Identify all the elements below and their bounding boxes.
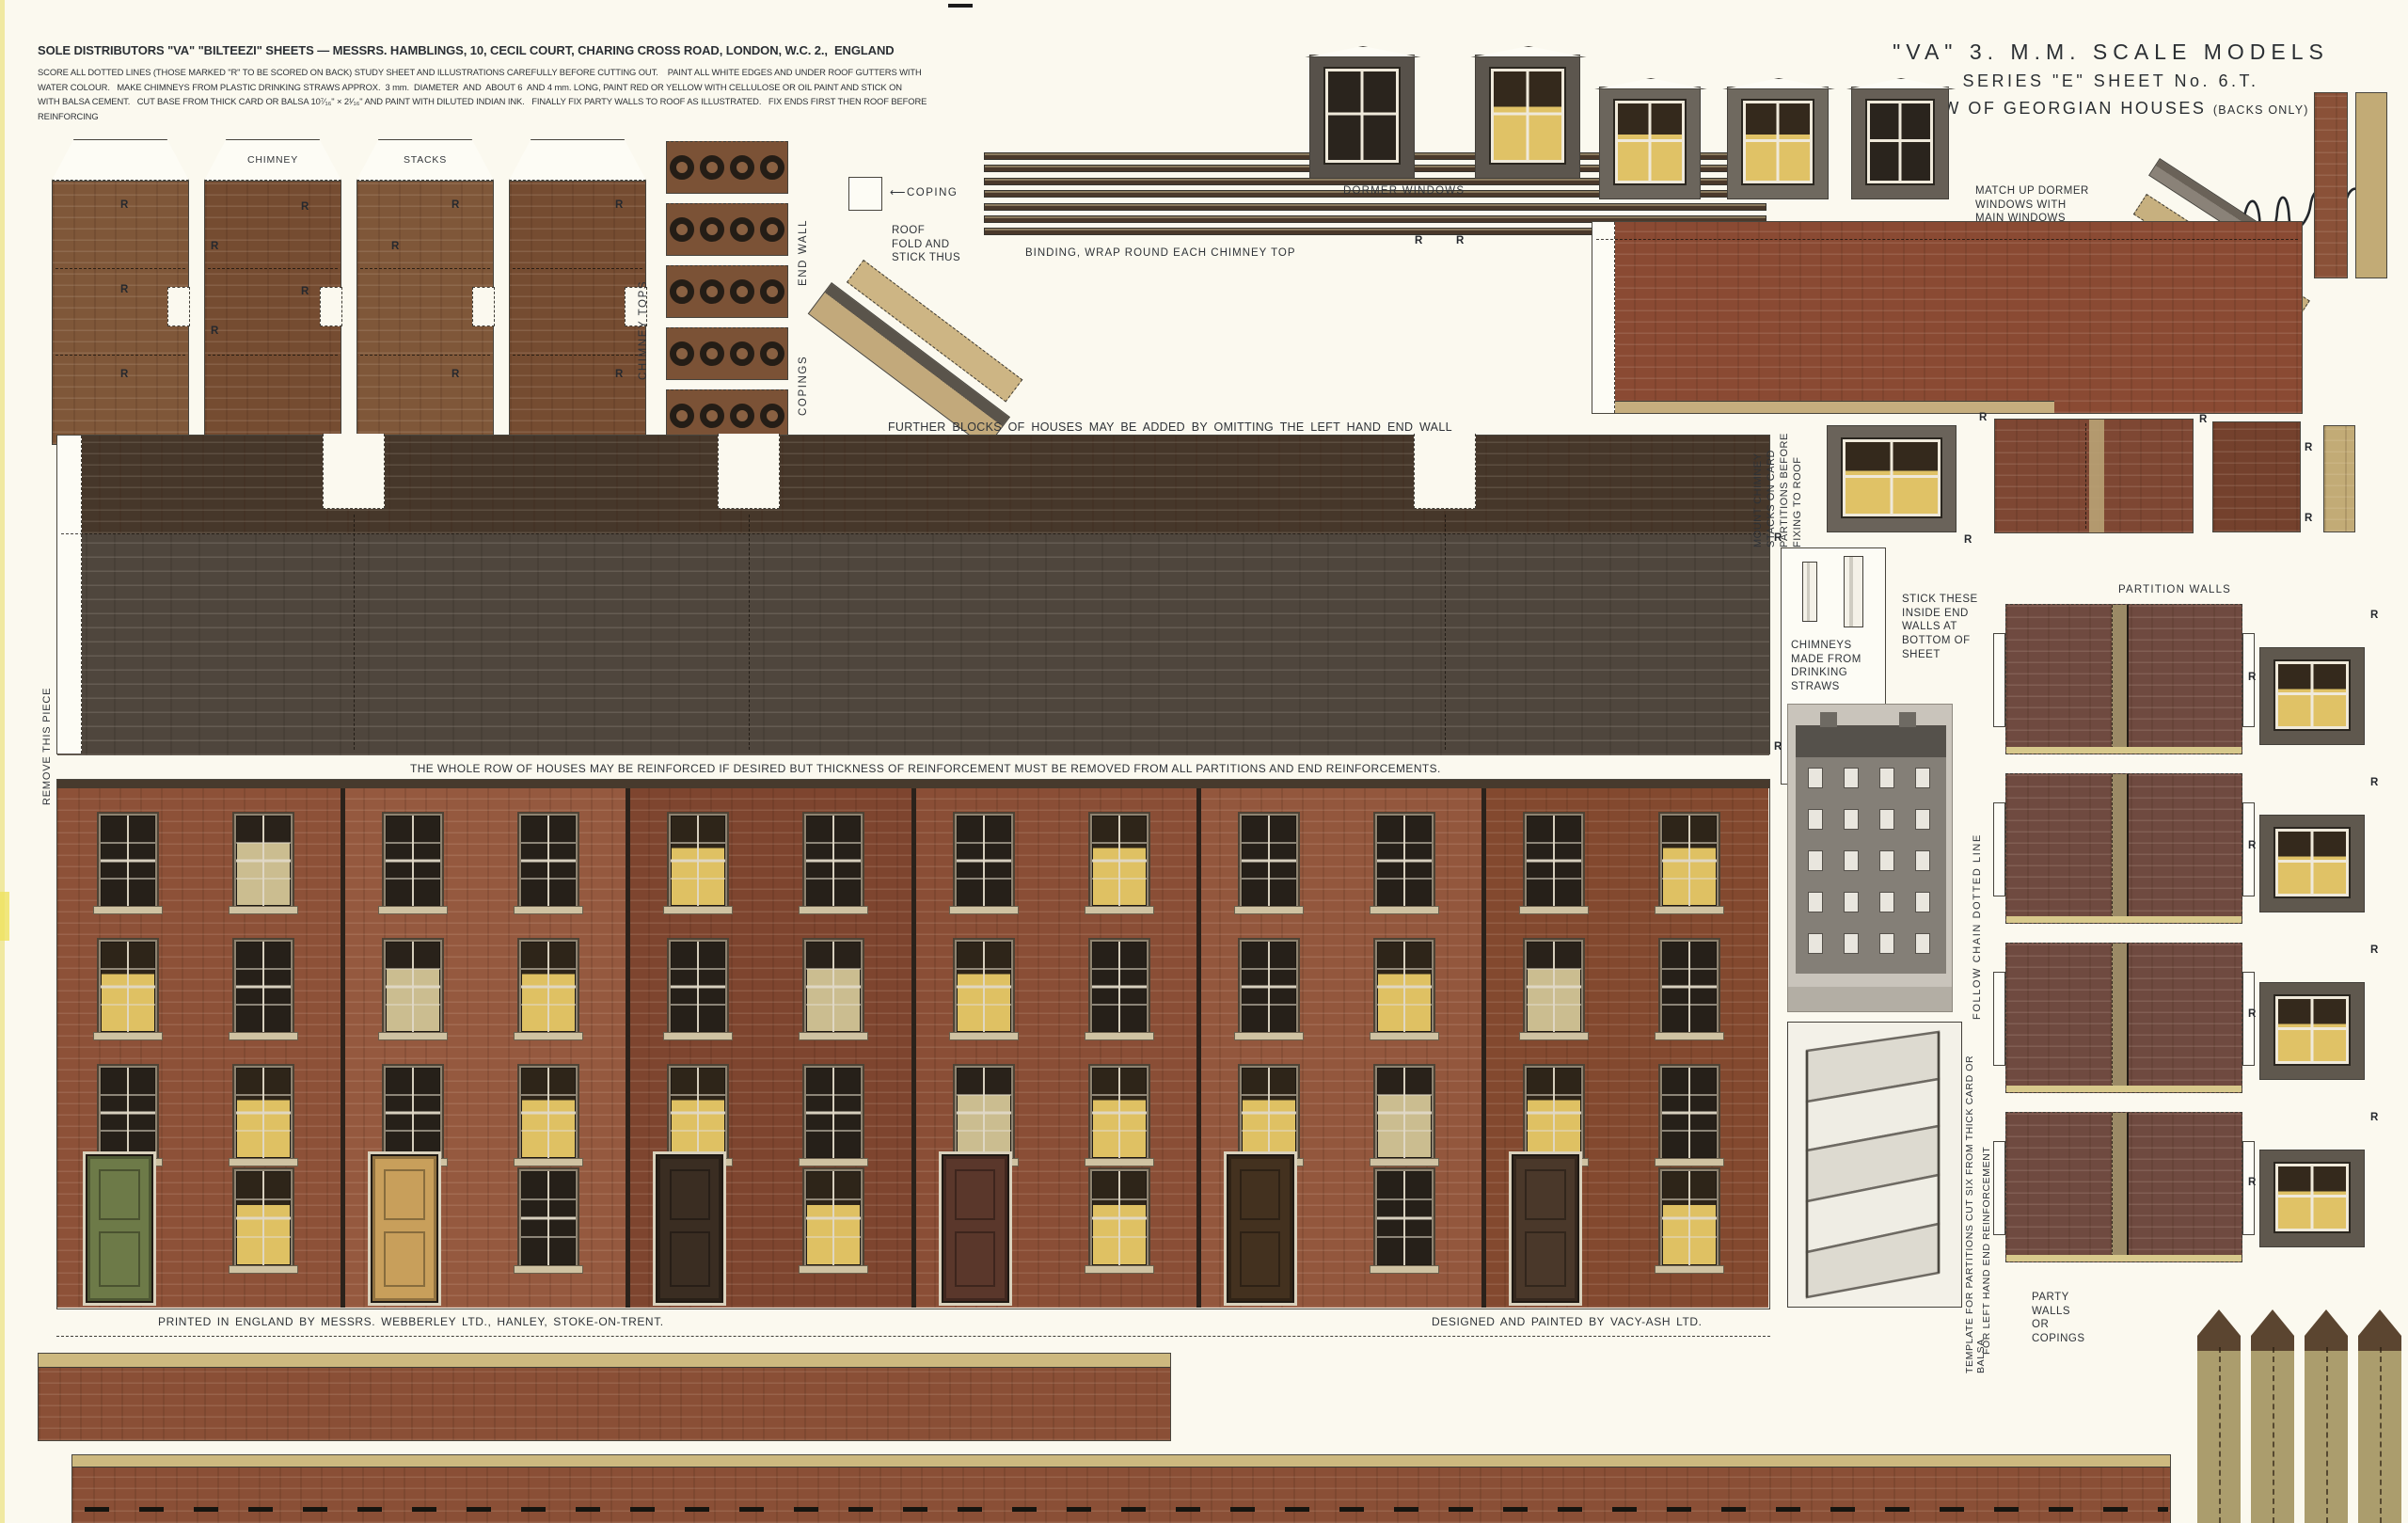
house-door	[942, 1154, 1009, 1303]
house-unit	[1483, 780, 1768, 1308]
dormer-glass	[1743, 101, 1813, 183]
dormer-glass	[2275, 1164, 2349, 1231]
roof-piece	[56, 435, 1770, 754]
partition-center-band	[2112, 774, 2129, 923]
party-walls-label: PARTY WALLS OR COPINGS	[2032, 1291, 2085, 1346]
score-on-back-mark: R	[1964, 534, 1972, 546]
mount-chimney-note: MOUNT CHIMNEY STACKS ON CARD PARTITIONS …	[1751, 414, 1804, 547]
illus-window	[1916, 769, 1929, 787]
sash-window	[1525, 1066, 1583, 1160]
illus-window	[1880, 851, 1893, 870]
dormer-roof-flap	[1715, 78, 1843, 89]
follow-chain-note: FOLLOW CHAIN DOTTED LINE	[1972, 783, 1983, 1020]
illus-window	[1916, 893, 1929, 912]
sash-window	[99, 940, 157, 1034]
partition-wall-block	[2005, 604, 2242, 754]
roof-slates	[57, 533, 1769, 755]
partition-wall-block	[2005, 1112, 2242, 1262]
ground-floor-window	[804, 1169, 863, 1267]
binding-label: BINDING, WRAP ROUND EACH CHIMNEY TOP	[1025, 246, 1296, 261]
house-unit	[57, 780, 342, 1308]
house-door	[86, 1154, 153, 1303]
sash-window	[1525, 940, 1583, 1034]
illus-window	[1845, 934, 1858, 953]
dormer-window-piece	[1475, 55, 1580, 179]
partition-base-sliver	[2006, 1086, 2242, 1092]
house-door	[1512, 1154, 1579, 1303]
yard-wall-2-coping	[72, 1455, 2170, 1467]
illus-chimney-1	[1820, 712, 1837, 727]
margin-strip-2	[2355, 92, 2387, 278]
party-wall-strip	[2305, 1309, 2348, 1523]
margin-strip-3	[2323, 425, 2355, 532]
yard-wall-1-coping	[39, 1354, 1170, 1368]
sash-window	[1240, 940, 1298, 1034]
partition-base-sliver	[2006, 916, 2242, 923]
illus-roof	[1796, 725, 1946, 757]
side-dormer-pieces	[2259, 647, 2368, 1268]
reinforcement-band	[2089, 420, 2104, 532]
sash-window	[519, 940, 578, 1034]
dormer-window-piece	[1309, 55, 1415, 179]
bottom-cut-dashes	[85, 1507, 2168, 1512]
sash-window	[1660, 814, 1719, 908]
sash-window	[1090, 1066, 1149, 1160]
partition-side-tab	[1993, 802, 2005, 896]
dormer-sample-glass	[1843, 439, 1941, 516]
chimney-pot-ring	[760, 279, 784, 304]
sash-window	[669, 814, 727, 908]
stack-fold-line	[360, 355, 490, 356]
illus-window	[1809, 934, 1822, 953]
illus-chimney-2	[1899, 712, 1916, 727]
illus-window	[1809, 893, 1822, 912]
stack-fold-line	[360, 268, 490, 269]
partition-wall-pieces	[2005, 604, 2244, 1281]
sash-window	[1660, 1066, 1719, 1160]
chimney-gap-2	[718, 434, 780, 509]
roof-upper-band	[57, 436, 1769, 533]
illus-window	[1880, 810, 1893, 829]
partition-center-band	[2112, 605, 2129, 754]
downpipe	[341, 780, 345, 1308]
dormer-roof-flap	[1587, 78, 1715, 89]
illus-window	[1916, 810, 1929, 829]
downpipe	[1196, 780, 1201, 1308]
illus-window	[1916, 934, 1929, 953]
sash-window	[384, 940, 442, 1034]
house-door	[656, 1154, 723, 1303]
stack-cut-notch	[320, 287, 342, 326]
house-unit	[627, 780, 912, 1308]
sash-window	[804, 1066, 863, 1160]
illus-window	[1809, 851, 1822, 870]
sash-window	[1525, 814, 1583, 908]
dormer-window-sample	[1827, 425, 1956, 532]
ground-floor-window	[234, 1169, 293, 1267]
stack-cut-notch	[167, 287, 190, 326]
house-wall-piece	[56, 779, 1770, 1309]
dormer-roof-flap	[1297, 46, 1429, 57]
house-unit	[913, 780, 1198, 1308]
partition-side-tab	[2242, 802, 2255, 896]
straw-2	[1844, 556, 1863, 627]
sash-window	[1090, 814, 1149, 908]
score-on-back-mark: R	[2199, 414, 2207, 425]
dormer-glass	[2275, 829, 2349, 896]
printer-caption: PRINTED IN ENGLAND BY MESSRS. WEBBERLEY …	[158, 1315, 664, 1328]
margin-strip-1	[2314, 92, 2348, 278]
dormer-glass	[1325, 69, 1399, 163]
chimney-pot-ring	[730, 341, 754, 366]
sash-window	[1375, 940, 1434, 1034]
designer-caption: DESIGNED AND PAINTED BY VACY-ASH LTD.	[1432, 1315, 1703, 1328]
sash-window	[99, 1066, 157, 1160]
house-unit	[342, 780, 627, 1308]
downpipe	[1481, 780, 1486, 1308]
sash-window	[804, 940, 863, 1034]
house-door	[371, 1154, 438, 1303]
partition-side-tab	[2242, 633, 2255, 727]
partition-base-sliver	[2006, 747, 2242, 754]
sash-window	[1375, 1066, 1434, 1160]
illus-window	[1880, 893, 1893, 912]
chimney-top-strip	[666, 265, 788, 318]
chimney-gap-1	[323, 434, 385, 509]
side-dormer-piece	[2259, 982, 2365, 1080]
partition-wall-block	[2005, 943, 2242, 1093]
ground-floor-window	[1090, 1169, 1149, 1267]
ground-floor-window	[1660, 1169, 1719, 1267]
yard-wall-end-flap	[1592, 222, 1615, 413]
sash-window	[1660, 940, 1719, 1034]
illus-window	[1880, 934, 1893, 953]
sash-window	[955, 814, 1013, 908]
dormer-window-piece	[1727, 87, 1829, 199]
illus-window	[1809, 810, 1822, 829]
score-on-back-mark: R	[2370, 610, 2378, 621]
dormer-glass	[2275, 996, 2349, 1064]
copings-label: COPINGS	[798, 312, 809, 416]
gutter-line	[57, 780, 1769, 788]
sash-window	[1090, 940, 1149, 1034]
dormer-glass	[1867, 101, 1933, 183]
sash-window	[669, 940, 727, 1034]
chimney-pot-ring	[700, 279, 724, 304]
whole-row-caption: THE WHOLE ROW OF HOUSES MAY BE REINFORCE…	[410, 762, 1441, 776]
partition-side-tab	[2242, 972, 2255, 1066]
stack-fold-line	[55, 268, 185, 269]
downpipe	[911, 780, 916, 1308]
end-wall-reinforcement-piece	[1994, 419, 2194, 533]
downpipe	[626, 780, 630, 1308]
sash-window	[234, 814, 293, 908]
chimney-pot-ring	[670, 341, 694, 366]
finished-model-illustration	[1787, 704, 1953, 1012]
chimney-pot-ring	[670, 404, 694, 428]
sash-window	[955, 940, 1013, 1034]
end-wall-reinforcement-piece-2	[2212, 421, 2301, 532]
side-dormer-piece	[2259, 815, 2365, 912]
illus-window	[1845, 851, 1858, 870]
illus-window	[1845, 810, 1858, 829]
illus-window	[1845, 769, 1858, 787]
score-on-back-mark: R	[2305, 513, 2312, 524]
sash-window	[234, 940, 293, 1034]
partition-base-sliver	[2006, 1255, 2242, 1261]
side-dormer-piece	[2259, 1150, 2365, 1247]
stack-fold-line	[513, 355, 642, 356]
wall-cut-line	[56, 1336, 1770, 1337]
illus-window	[1809, 769, 1822, 787]
ground-floor-window	[519, 1169, 578, 1267]
yard-wall-lower-1	[38, 1353, 1171, 1441]
sash-window	[519, 814, 578, 908]
partition-wall-block	[2005, 773, 2242, 924]
partition-center-band	[2112, 1113, 2129, 1261]
dormer-roof-flap	[1463, 46, 1594, 57]
straws-note: CHIMNEYS MADE FROM DRINKING STRAWS	[1791, 639, 1861, 694]
sash-window	[1375, 814, 1434, 908]
straw-1	[1802, 562, 1817, 622]
stack-fold-line	[208, 355, 338, 356]
partition-side-tab	[1993, 972, 2005, 1066]
sash-window	[1240, 814, 1298, 908]
stack-fold-line	[513, 268, 642, 269]
chimney-pot-ring	[700, 404, 724, 428]
sash-window	[955, 1066, 1013, 1160]
chimney-pot-ring	[700, 341, 724, 366]
illus-window	[1880, 769, 1893, 787]
house-unit	[1198, 780, 1483, 1308]
side-dormer-piece	[2259, 647, 2365, 745]
illus-window	[1916, 851, 1929, 870]
sash-window	[804, 814, 863, 908]
template-note-2: FOR LEFT HAND END REINFORCEMENT	[1981, 1072, 1992, 1355]
chimney-pot-ring	[760, 404, 784, 428]
sash-window	[384, 1066, 442, 1160]
dormer-glass	[1615, 101, 1685, 183]
score-on-back-mark: R	[2370, 944, 2378, 956]
further-blocks-line-1: FURTHER BLOCKS OF HOUSES MAY BE ADDED BY…	[888, 420, 1452, 434]
sash-window	[669, 1066, 727, 1160]
partition-side-tab	[1993, 1141, 2005, 1235]
stack-fold-line	[55, 355, 185, 356]
partition-side-tab	[1993, 633, 2005, 727]
partition-walls-label: PARTITION WALLS	[2118, 583, 2231, 597]
chimney-pot-ring	[730, 279, 754, 304]
score-on-back-mark: R	[2370, 1112, 2378, 1123]
chimney-gap-3	[1414, 434, 1476, 509]
ground-floor-window	[1375, 1169, 1434, 1267]
score-on-back-mark: R	[2305, 442, 2312, 453]
stick-these-note: STICK THESE INSIDE END WALLS AT BOTTOM O…	[1902, 593, 1978, 662]
illus-ground	[1788, 987, 1952, 1011]
sash-window	[1240, 1066, 1298, 1160]
chimney-top-strip	[666, 327, 788, 380]
match-up-note: MATCH UP DORMER WINDOWS WITH MAIN WINDOW…	[1975, 184, 2089, 226]
party-wall-strip	[2197, 1309, 2241, 1523]
party-wall-strips	[2197, 1309, 2408, 1523]
party-wall-strip	[2251, 1309, 2294, 1523]
sash-window	[99, 814, 157, 908]
chimney-pot-ring	[760, 341, 784, 366]
dormer-windows-label: DORMER WINDOWS	[1343, 184, 1465, 198]
sash-window	[519, 1066, 578, 1160]
yard-wall-lower-2	[71, 1454, 2171, 1523]
party-wall-strip	[2358, 1309, 2401, 1523]
dormer-roof-flap	[1839, 78, 1963, 89]
sash-window	[384, 814, 442, 908]
partition-cutaway-illustration	[1787, 1022, 1962, 1308]
chimney-pot-ring	[670, 279, 694, 304]
illus-window	[1845, 893, 1858, 912]
yard-wall-piece	[1592, 221, 2303, 414]
dormer-glass	[1491, 69, 1564, 163]
model-sheet: SOLE DISTRIBUTORS "VA" "BILTEEZI" SHEETS…	[0, 0, 2408, 1523]
house-door	[1227, 1154, 1294, 1303]
dormer-window-piece	[1599, 87, 1701, 199]
dormer-glass	[2275, 661, 2349, 729]
stack-fold-line	[208, 268, 338, 269]
partition-center-band	[2112, 944, 2129, 1092]
stack-cut-notch	[472, 287, 495, 326]
paper-edge-stain-2	[0, 892, 9, 941]
chimney-pot-ring	[730, 404, 754, 428]
sash-window	[234, 1066, 293, 1160]
dormer-window-piece	[1851, 87, 1949, 199]
partition-side-tab	[2242, 1141, 2255, 1235]
illus-wall	[1796, 757, 1946, 974]
score-on-back-mark: R	[2370, 777, 2378, 788]
